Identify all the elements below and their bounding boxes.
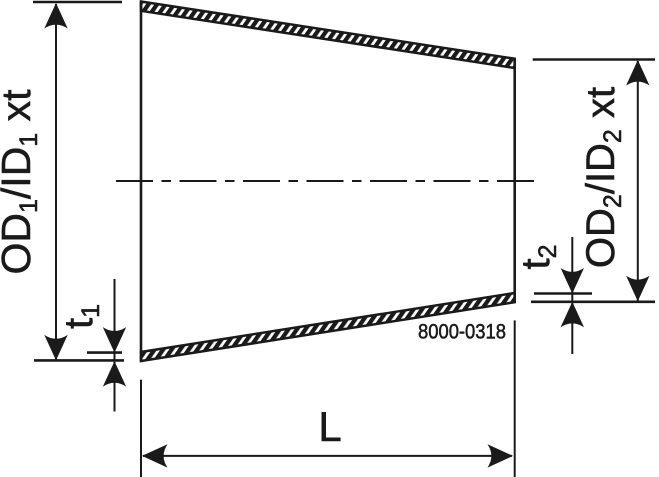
svg-text:8000-0318: 8000-0318 bbox=[418, 320, 506, 344]
svg-text:OD1/ID1 xt: OD1/ID1 xt bbox=[0, 89, 43, 275]
svg-text:OD2/ID2 xt: OD2/ID2 xt bbox=[579, 87, 627, 268]
svg-text:L: L bbox=[318, 403, 341, 450]
